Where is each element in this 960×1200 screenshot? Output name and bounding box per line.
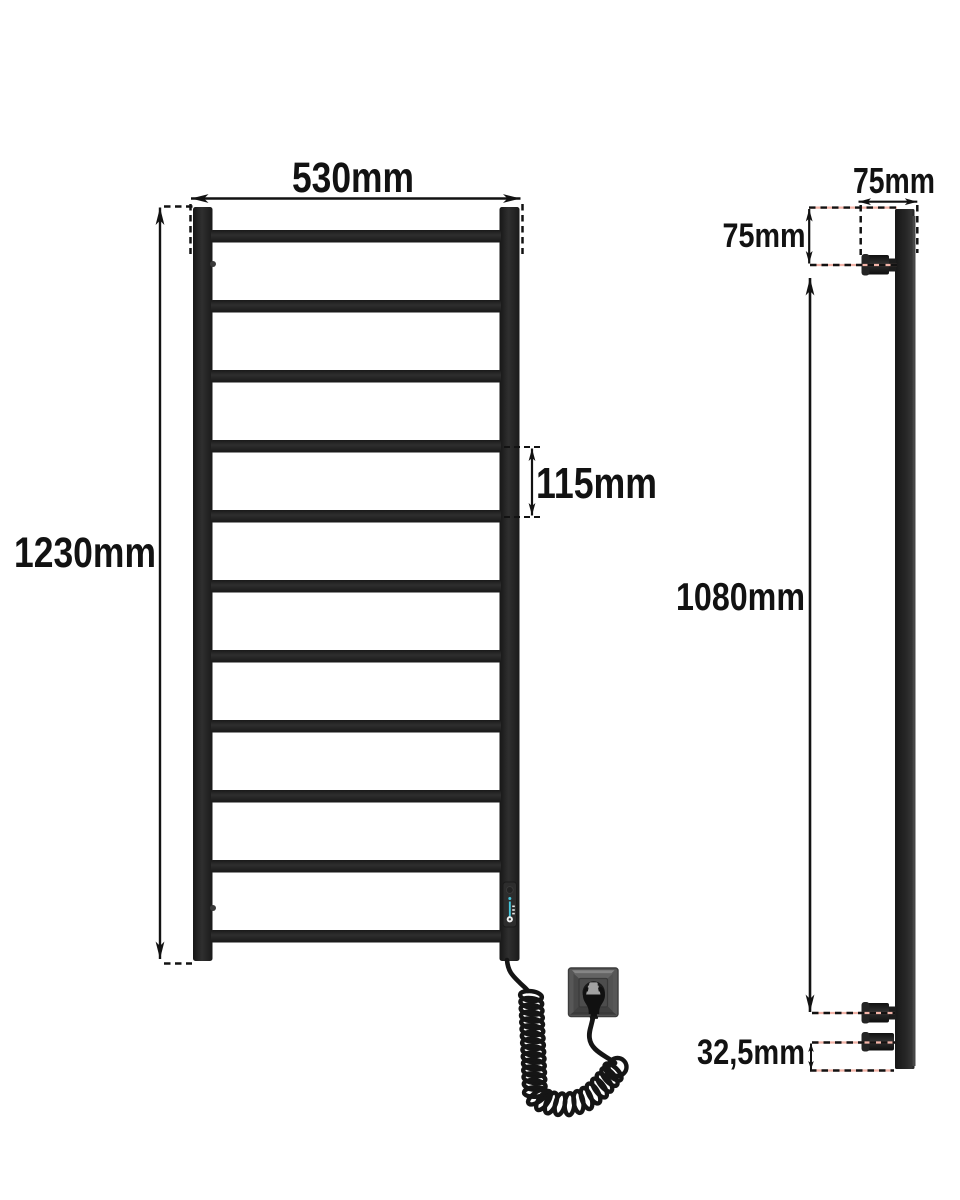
svg-text:1230mm: 1230mm bbox=[14, 529, 156, 577]
svg-text:32,5mm: 32,5mm bbox=[697, 1033, 805, 1072]
svg-text:530mm: 530mm bbox=[292, 154, 414, 202]
svg-text:75mm: 75mm bbox=[723, 217, 806, 255]
svg-text:1080mm: 1080mm bbox=[676, 576, 805, 619]
svg-text:115mm: 115mm bbox=[536, 459, 657, 508]
svg-text:75mm: 75mm bbox=[853, 160, 935, 201]
